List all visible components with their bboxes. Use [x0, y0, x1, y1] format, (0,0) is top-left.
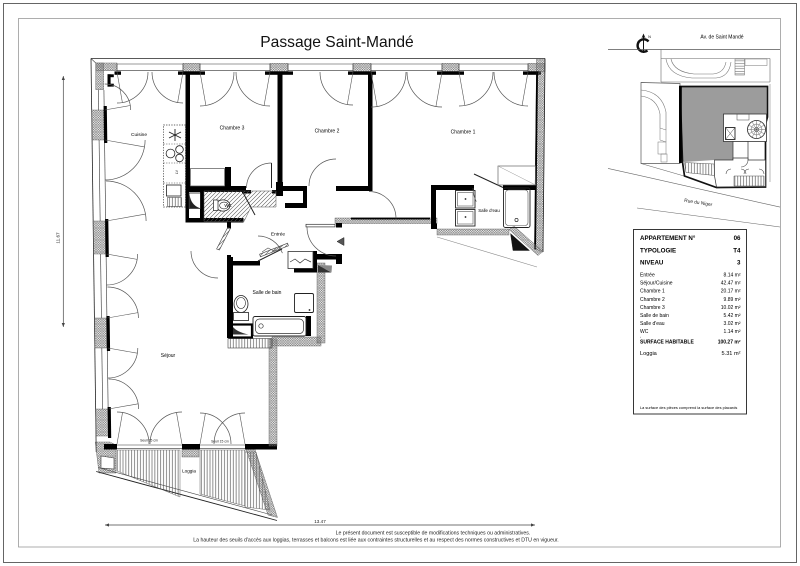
svg-text:Chambre 3: Chambre 3 — [640, 305, 665, 311]
svg-text:Passage Saint-Mandé: Passage Saint-Mandé — [260, 34, 413, 51]
svg-text:Av. de Saint Mandé: Av. de Saint Mandé — [700, 35, 743, 41]
svg-text:100.27 m²: 100.27 m² — [718, 340, 741, 346]
svg-text:13.47: 13.47 — [314, 519, 326, 524]
svg-text:Cuisine: Cuisine — [131, 132, 147, 138]
svg-text:Seuil 15 cm: Seuil 15 cm — [140, 439, 158, 443]
svg-text:TYPOLOGIE: TYPOLOGIE — [640, 248, 676, 255]
svg-text:5.42 m²: 5.42 m² — [724, 313, 741, 319]
svg-text:Seuil 15 cm: Seuil 15 cm — [211, 440, 229, 444]
svg-text:WC: WC — [224, 203, 231, 208]
svg-text:N: N — [648, 35, 651, 39]
svg-text:LV: LV — [175, 169, 179, 174]
svg-text:1.14 m²: 1.14 m² — [724, 329, 741, 335]
svg-text:La hauteur des seuils d'accès: La hauteur des seuils d'accès aux loggia… — [193, 538, 558, 544]
svg-text:42.47 m²: 42.47 m² — [721, 281, 741, 287]
svg-text:Séjour: Séjour — [161, 353, 176, 359]
svg-text:8.14 m²: 8.14 m² — [724, 273, 741, 279]
svg-text:20.17 m²: 20.17 m² — [721, 289, 741, 295]
svg-text:SURFACE HABITABLE: SURFACE HABITABLE — [640, 340, 694, 346]
svg-text:Entrée: Entrée — [271, 232, 285, 238]
svg-text:06: 06 — [734, 235, 741, 242]
svg-text:Chambre 2: Chambre 2 — [315, 129, 340, 135]
svg-text:3: 3 — [737, 260, 741, 267]
svg-text:T4: T4 — [733, 248, 741, 255]
svg-text:Chambre 3: Chambre 3 — [220, 126, 245, 132]
svg-text:Entrée: Entrée — [640, 273, 655, 279]
svg-text:Chambre 2: Chambre 2 — [640, 297, 665, 303]
svg-text:Loggia: Loggia — [182, 469, 196, 474]
svg-text:Salle d'eau: Salle d'eau — [478, 208, 500, 213]
svg-text:La surface des pièces comprend: La surface des pièces comprend la surfac… — [640, 405, 737, 410]
svg-text:Chambre 1: Chambre 1 — [451, 130, 476, 136]
svg-text:Salle de bain: Salle de bain — [640, 313, 669, 319]
svg-text:3.02 m²: 3.02 m² — [724, 321, 741, 327]
svg-text:11.67: 11.67 — [56, 232, 61, 244]
svg-text:Salle d'eau: Salle d'eau — [640, 321, 665, 327]
svg-text:APPARTEMENT N°: APPARTEMENT N° — [640, 235, 696, 242]
svg-text:NIVEAU: NIVEAU — [640, 260, 664, 267]
svg-text:10.02 m²: 10.02 m² — [721, 305, 741, 311]
svg-text:Séjour/Cuisine: Séjour/Cuisine — [640, 281, 673, 287]
svg-text:Salle de bain: Salle de bain — [253, 290, 282, 296]
svg-text:Le présent document est suscep: Le présent document est susceptible de m… — [336, 531, 531, 537]
svg-text:9.89 m²: 9.89 m² — [724, 297, 741, 303]
svg-text:5.31 m²: 5.31 m² — [722, 351, 741, 357]
svg-text:Loggia: Loggia — [640, 351, 658, 357]
svg-text:Chambre 1: Chambre 1 — [640, 289, 665, 295]
